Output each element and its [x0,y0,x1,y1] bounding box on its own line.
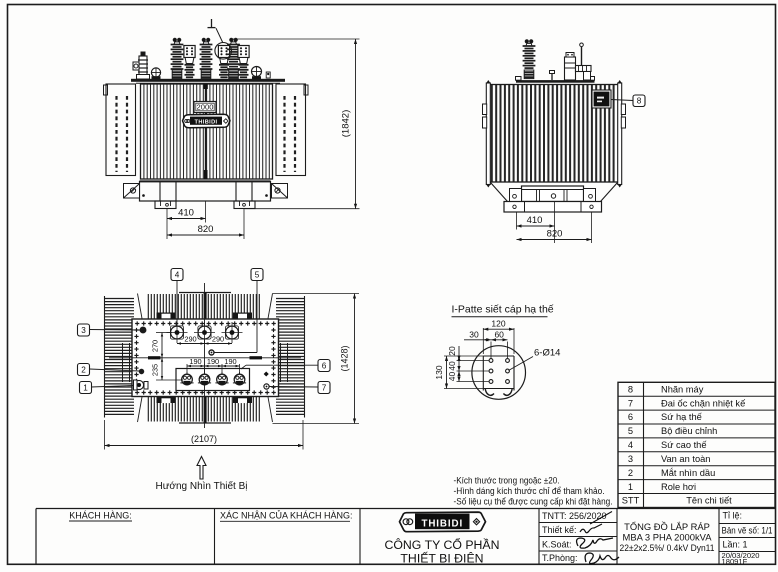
svg-text:4: 4 [175,270,180,279]
svg-text:290: 290 [184,335,196,344]
svg-text:KHÁCH HÀNG:: KHÁCH HÀNG: [69,511,132,521]
svg-text:7: 7 [322,383,327,392]
svg-text:130: 130 [434,365,444,379]
svg-text:5: 5 [628,426,633,436]
svg-text:TỔNG ĐỒ LẮP RÁP: TỔNG ĐỒ LẮP RÁP [624,521,710,532]
svg-text:Lần: 1: Lần: 1 [723,540,748,550]
svg-text:20: 20 [447,346,457,356]
svg-text:Tỉ lệ:: Tỉ lệ: [723,511,743,521]
svg-text:XÁC NHẬN CỦA KHÁCH HÀNG:: XÁC NHẬN CỦA KHÁCH HÀNG: [220,510,353,521]
svg-text:8: 8 [637,96,642,105]
svg-text:(1428): (1428) [340,345,350,371]
svg-text:7: 7 [628,398,633,408]
svg-text:40: 40 [447,372,457,382]
svg-text:3: 3 [628,454,633,464]
svg-text:6: 6 [628,412,633,422]
svg-text:30: 30 [469,329,479,339]
svg-text:Hướng Nhìn Thiết Bị: Hướng Nhìn Thiết Bị [156,480,248,492]
svg-text:STT: STT [622,496,640,506]
svg-text:290: 290 [212,335,224,344]
svg-text:2: 2 [81,365,86,374]
svg-text:270: 270 [151,340,160,352]
svg-text:190: 190 [189,357,201,366]
svg-text:THIBIDI: THIBIDI [421,519,463,530]
svg-text:Tên chi tiết: Tên chi tiết [686,496,732,506]
svg-text:-Số liệu cụ thể được cung cấp: -Số liệu cụ thể được cung cấp khi đặt hà… [454,497,613,507]
svg-text:410: 410 [527,215,543,226]
svg-text:190: 190 [207,357,219,366]
svg-text:190: 190 [224,357,236,366]
svg-text:-Kích thước trong ngoặc ±20.: -Kích thước trong ngoặc ±20. [454,476,560,486]
svg-text:5: 5 [255,270,260,279]
svg-text:K.Soát:: K.Soát: [542,540,572,550]
svg-text:Sứ hạ thế: Sứ hạ thế [661,412,703,422]
svg-text:60: 60 [494,329,504,339]
svg-text:18091F: 18091F [722,557,748,566]
svg-text:4: 4 [628,440,633,450]
svg-text:Mắt nhìn dầu: Mắt nhìn dầu [661,468,715,478]
svg-text:THIBIDI: THIBIDI [195,119,218,125]
svg-text:Đai ốc chặn nhiệt kế: Đai ốc chặn nhiệt kế [661,398,746,408]
svg-text:3: 3 [81,326,86,335]
svg-text:(1842): (1842) [341,110,352,137]
svg-text:Bộ điều chỉnh: Bộ điều chỉnh [661,426,717,436]
svg-text:Sứ cao thế: Sứ cao thế [661,440,707,450]
svg-text:I-Patte siết cáp hạ thế: I-Patte siết cáp hạ thế [452,304,554,316]
svg-text:Van an toàn: Van an toàn [661,454,710,464]
svg-text:Thiết kế:: Thiết kế: [542,525,577,535]
svg-text:6-Ø14: 6-Ø14 [534,348,560,359]
svg-text:6: 6 [322,361,327,370]
svg-text:MBA 3 PHA 2000kVA: MBA 3 PHA 2000kVA [623,532,713,543]
svg-text:40: 40 [447,361,457,371]
svg-text:1: 1 [83,383,88,392]
svg-text:2: 2 [628,468,633,478]
svg-text:820: 820 [547,229,563,240]
svg-text:8: 8 [628,384,633,394]
svg-text:410: 410 [178,208,194,219]
svg-text:235: 235 [151,364,160,376]
svg-text:Bản vẽ số: 1/1: Bản vẽ số: 1/1 [722,526,773,536]
svg-text:(2107): (2107) [191,434,217,444]
svg-text:Nhãn máy: Nhãn máy [661,384,704,394]
svg-text:2000: 2000 [197,103,214,112]
svg-text:Role hơi: Role hơi [661,482,696,492]
svg-text:THIẾT BỊ ĐIỆN: THIẾT BỊ ĐIỆN [400,551,483,566]
svg-text:820: 820 [198,224,214,235]
svg-text:CÔNG TY CỔ PHẦN: CÔNG TY CỔ PHẦN [384,537,499,552]
svg-text:120: 120 [491,319,505,329]
svg-text:1: 1 [628,482,633,492]
svg-text:22±2x2.5%/ 0.4kV Dyn11: 22±2x2.5%/ 0.4kV Dyn11 [620,542,715,553]
svg-text:T.Phòng:: T.Phòng: [542,553,578,563]
svg-text:-Hình dáng kích thước chỉ để t: -Hình dáng kích thước chỉ để tham khảo. [454,486,605,496]
